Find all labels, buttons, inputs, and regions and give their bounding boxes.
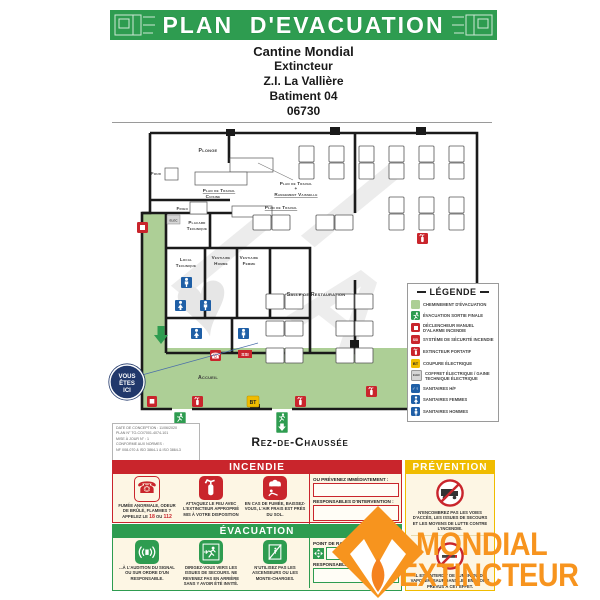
- alarm-call-point-icon: [137, 222, 148, 233]
- floor-label: Rez-de-Chaussée: [210, 435, 390, 449]
- legend-item: SANITAIRES FEMMES: [411, 395, 495, 404]
- room-label: Femme: [243, 261, 256, 266]
- room-label: Plan de Travail: [265, 205, 297, 210]
- legend-title: LÉGENDE: [429, 287, 476, 297]
- fire-panel-title: INCENDIE: [113, 461, 401, 474]
- fire-step-call: ☎ FUMÉE ANORMALE, ODEUR DE BRÛLÉ, FLAMME…: [116, 476, 179, 524]
- electrical-cabinet-icon: ELEC: [167, 215, 180, 224]
- room-label: Four: [151, 171, 162, 176]
- room-label: Rangement Vaisselle: [274, 192, 317, 197]
- legend-dash: [480, 291, 489, 293]
- sanitary-women-icon: [411, 395, 420, 404]
- sanitary-men-icon: [181, 277, 192, 288]
- legend-item: EXTINCTEUR PORTATIF: [411, 347, 495, 356]
- room-label: Technique: [187, 226, 207, 231]
- smoke-crouch-icon: [263, 476, 287, 500]
- room-label: Plan de Travail: [203, 188, 235, 193]
- blueprint-decoration-right: [450, 13, 494, 37]
- sanitary-unisex-icon: ♂♀: [411, 384, 420, 393]
- extinguisher-icon: [417, 233, 428, 244]
- svg-text:ÊTES: ÊTES: [119, 379, 135, 387]
- plan-info-box: DATE DE CONCEPTION : 11/06/2020 PLAN N° …: [112, 423, 200, 464]
- site-name-line2: Extincteur: [110, 59, 497, 74]
- room-label: Frigo: [177, 206, 189, 211]
- legend-title-row: LÉGENDE: [411, 287, 495, 297]
- phone-icon: ☎: [134, 476, 160, 502]
- legend-dash: [417, 291, 426, 293]
- extinguisher-icon: [295, 396, 306, 407]
- notify-field: [313, 483, 399, 497]
- room-label: Salle de Restauration: [287, 292, 346, 298]
- legend-item: DÉCLENCHEUR MANUEL D'ALARME INCENDIE: [411, 323, 495, 333]
- electrical-cutoff-icon: BT: [411, 359, 420, 368]
- legend: LÉGENDE CHEMINEMENT D'ÉVACUATION ÉVACUAT…: [407, 283, 499, 422]
- extinguisher-icon: [411, 347, 420, 356]
- page-title: PLAN D'EVACUATION: [162, 12, 444, 39]
- site-building: Batiment 04: [110, 89, 497, 104]
- info-line: NF X08-070 & ISO 3864-1 & ISO 3864-3: [116, 448, 196, 453]
- legend-item: ♂♀ SANITAIRES H/F: [411, 384, 495, 393]
- sanitary-women-icon: [191, 328, 202, 339]
- legend-item: BT COUPURE ÉLECTRIQUE: [411, 359, 495, 368]
- sanitary-men-icon: [238, 328, 249, 339]
- fire-steps: ☎ FUMÉE ANORMALE, ODEUR DE BRÛLÉ, FLAMME…: [113, 474, 309, 525]
- evacuation-step-exit: DIRIGEZ-VOUS VERS LES ISSUES DE SECOURS.…: [180, 540, 243, 587]
- extinguisher-icon: [366, 386, 377, 397]
- legend-item: CHEMINEMENT D'ÉVACUATION: [411, 300, 495, 309]
- no-blocking-truck-icon: [435, 478, 465, 508]
- prevention-panel-title: PRÉVENTION: [406, 461, 494, 474]
- room-label: Local: [180, 257, 192, 262]
- site-address: Z.I. La Vallière: [110, 74, 497, 89]
- separator-line: [112, 122, 492, 123]
- svg-text:ICI: ICI: [123, 388, 131, 394]
- emergency-number: 112: [164, 514, 172, 520]
- sanitary-women-icon: [175, 300, 186, 311]
- notify-label: OU PRÉVENEZ IMMÉDIATEMENT :: [313, 477, 399, 482]
- extinguisher-icon: [199, 476, 223, 500]
- evacuation-route-icon: [411, 300, 420, 309]
- room-label: Accueil: [198, 375, 218, 381]
- evacuation-step-no-elevator: N'UTILISEZ PAS LES ASCENSEURS OU LES MON…: [244, 540, 307, 587]
- room-label: Placard: [188, 220, 206, 225]
- room-label: Homme: [214, 261, 228, 266]
- site-postcode: 06730: [110, 104, 497, 119]
- fire-step-smoke: EN CAS DE FUMÉE, BAISSEZ-VOUS, L'AIR FRA…: [244, 476, 307, 524]
- svg-text:SSI: SSI: [241, 352, 248, 357]
- svg-text:ELEC: ELEC: [169, 218, 178, 222]
- banner: PLAN D'EVACUATION: [110, 10, 497, 40]
- legend-item: ELEC COFFRET ÉLECTRIQUE / GAINE TECHNIQU…: [411, 370, 495, 381]
- sanitary-men-icon: [200, 300, 211, 311]
- evacuation-steps: ...À L'AUDITION DU SIGNAL OU SUR ORDRE D…: [113, 538, 309, 588]
- room-label: Technique: [176, 263, 196, 268]
- brand-name-line1: MONDIAL: [416, 528, 547, 560]
- svg-text:BT: BT: [250, 400, 257, 406]
- brand-name-line2: EXTINCTEUR: [399, 559, 579, 591]
- exit-sign-icon: [276, 412, 288, 433]
- ssi-icon: SSI: [238, 350, 252, 358]
- sanitary-men-icon: [411, 407, 420, 416]
- no-elevator-icon: [263, 540, 287, 564]
- room-label: Cuisine: [206, 194, 221, 199]
- alarm-call-point-icon: [411, 323, 420, 332]
- legend-item: SANITAIRES HOMMES: [411, 407, 495, 416]
- room-label: Vestiaire: [212, 255, 231, 260]
- room-label: Vestiaire: [240, 255, 259, 260]
- electrical-cutoff-icon: BT: [247, 396, 259, 407]
- exit-sign-icon: [411, 311, 420, 320]
- blueprint-decoration-left: [113, 13, 157, 37]
- exit-runner-icon: [199, 540, 223, 564]
- room-label: Plonge: [199, 148, 218, 154]
- fire-step-extinguisher: ATTAQUEZ LE FEU AVEC L'EXTINCTEUR APPROP…: [180, 476, 243, 524]
- room-label: +: [295, 186, 298, 191]
- alarm-signal-icon: [135, 540, 159, 564]
- assembly-point-icon: [313, 548, 324, 559]
- evacuation-plan-page: PLAN D'EVACUATION Cantine Mondial Extinc…: [0, 0, 600, 600]
- ssi-icon: SSI: [411, 335, 420, 344]
- legend-item: SSI SYSTÈME DE SÉCURITÉ INCENDIE: [411, 335, 495, 344]
- extinguisher-icon: [192, 396, 203, 407]
- svg-text:VOUS: VOUS: [118, 374, 135, 380]
- site-info: Cantine Mondial Extincteur Z.I. La Valli…: [110, 44, 497, 119]
- site-name-line1: Cantine Mondial: [110, 44, 497, 59]
- svg-text:☎: ☎: [211, 352, 221, 361]
- alarm-call-point-icon: [147, 396, 157, 407]
- electrical-cabinet-icon: ELEC: [411, 370, 422, 381]
- evacuation-step-signal: ...À L'AUDITION DU SIGNAL OU SUR ORDRE D…: [116, 540, 179, 587]
- legend-item: ÉVACUATION SORTIE FINALE: [411, 311, 495, 320]
